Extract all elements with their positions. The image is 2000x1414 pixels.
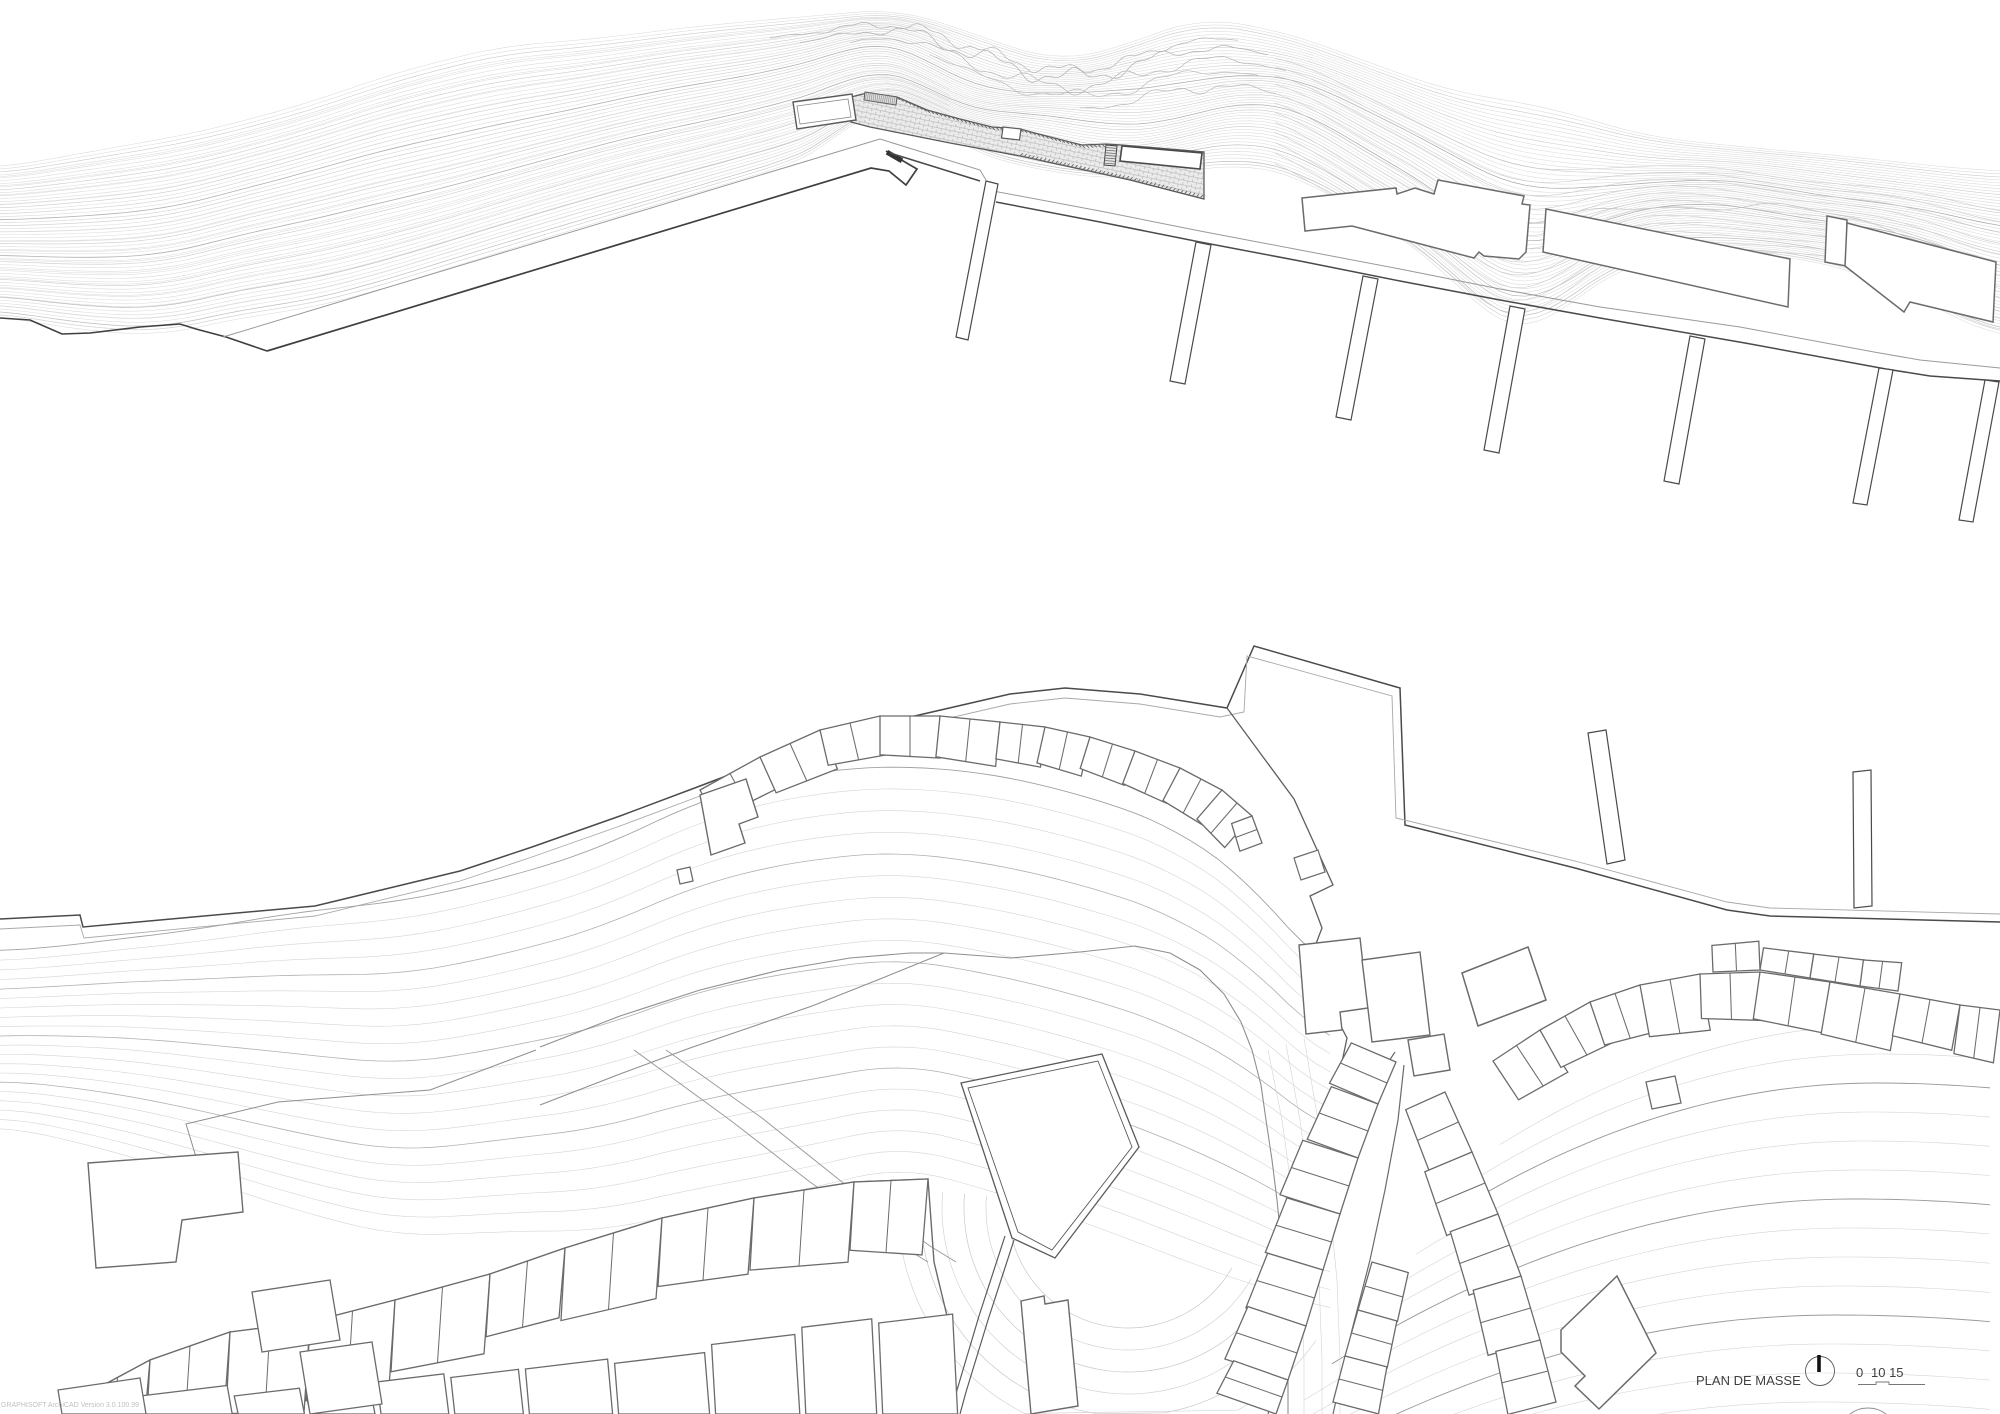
svg-text:0: 0 xyxy=(1856,1365,1863,1380)
svg-text:GRAPHISOFT ArchiCAD Version 3.: GRAPHISOFT ArchiCAD Version 3.0.100.99 xyxy=(1,1402,139,1409)
svg-text:PLAN DE MASSE: PLAN DE MASSE xyxy=(1696,1373,1801,1388)
svg-text:10 15: 10 15 xyxy=(1871,1365,1904,1380)
